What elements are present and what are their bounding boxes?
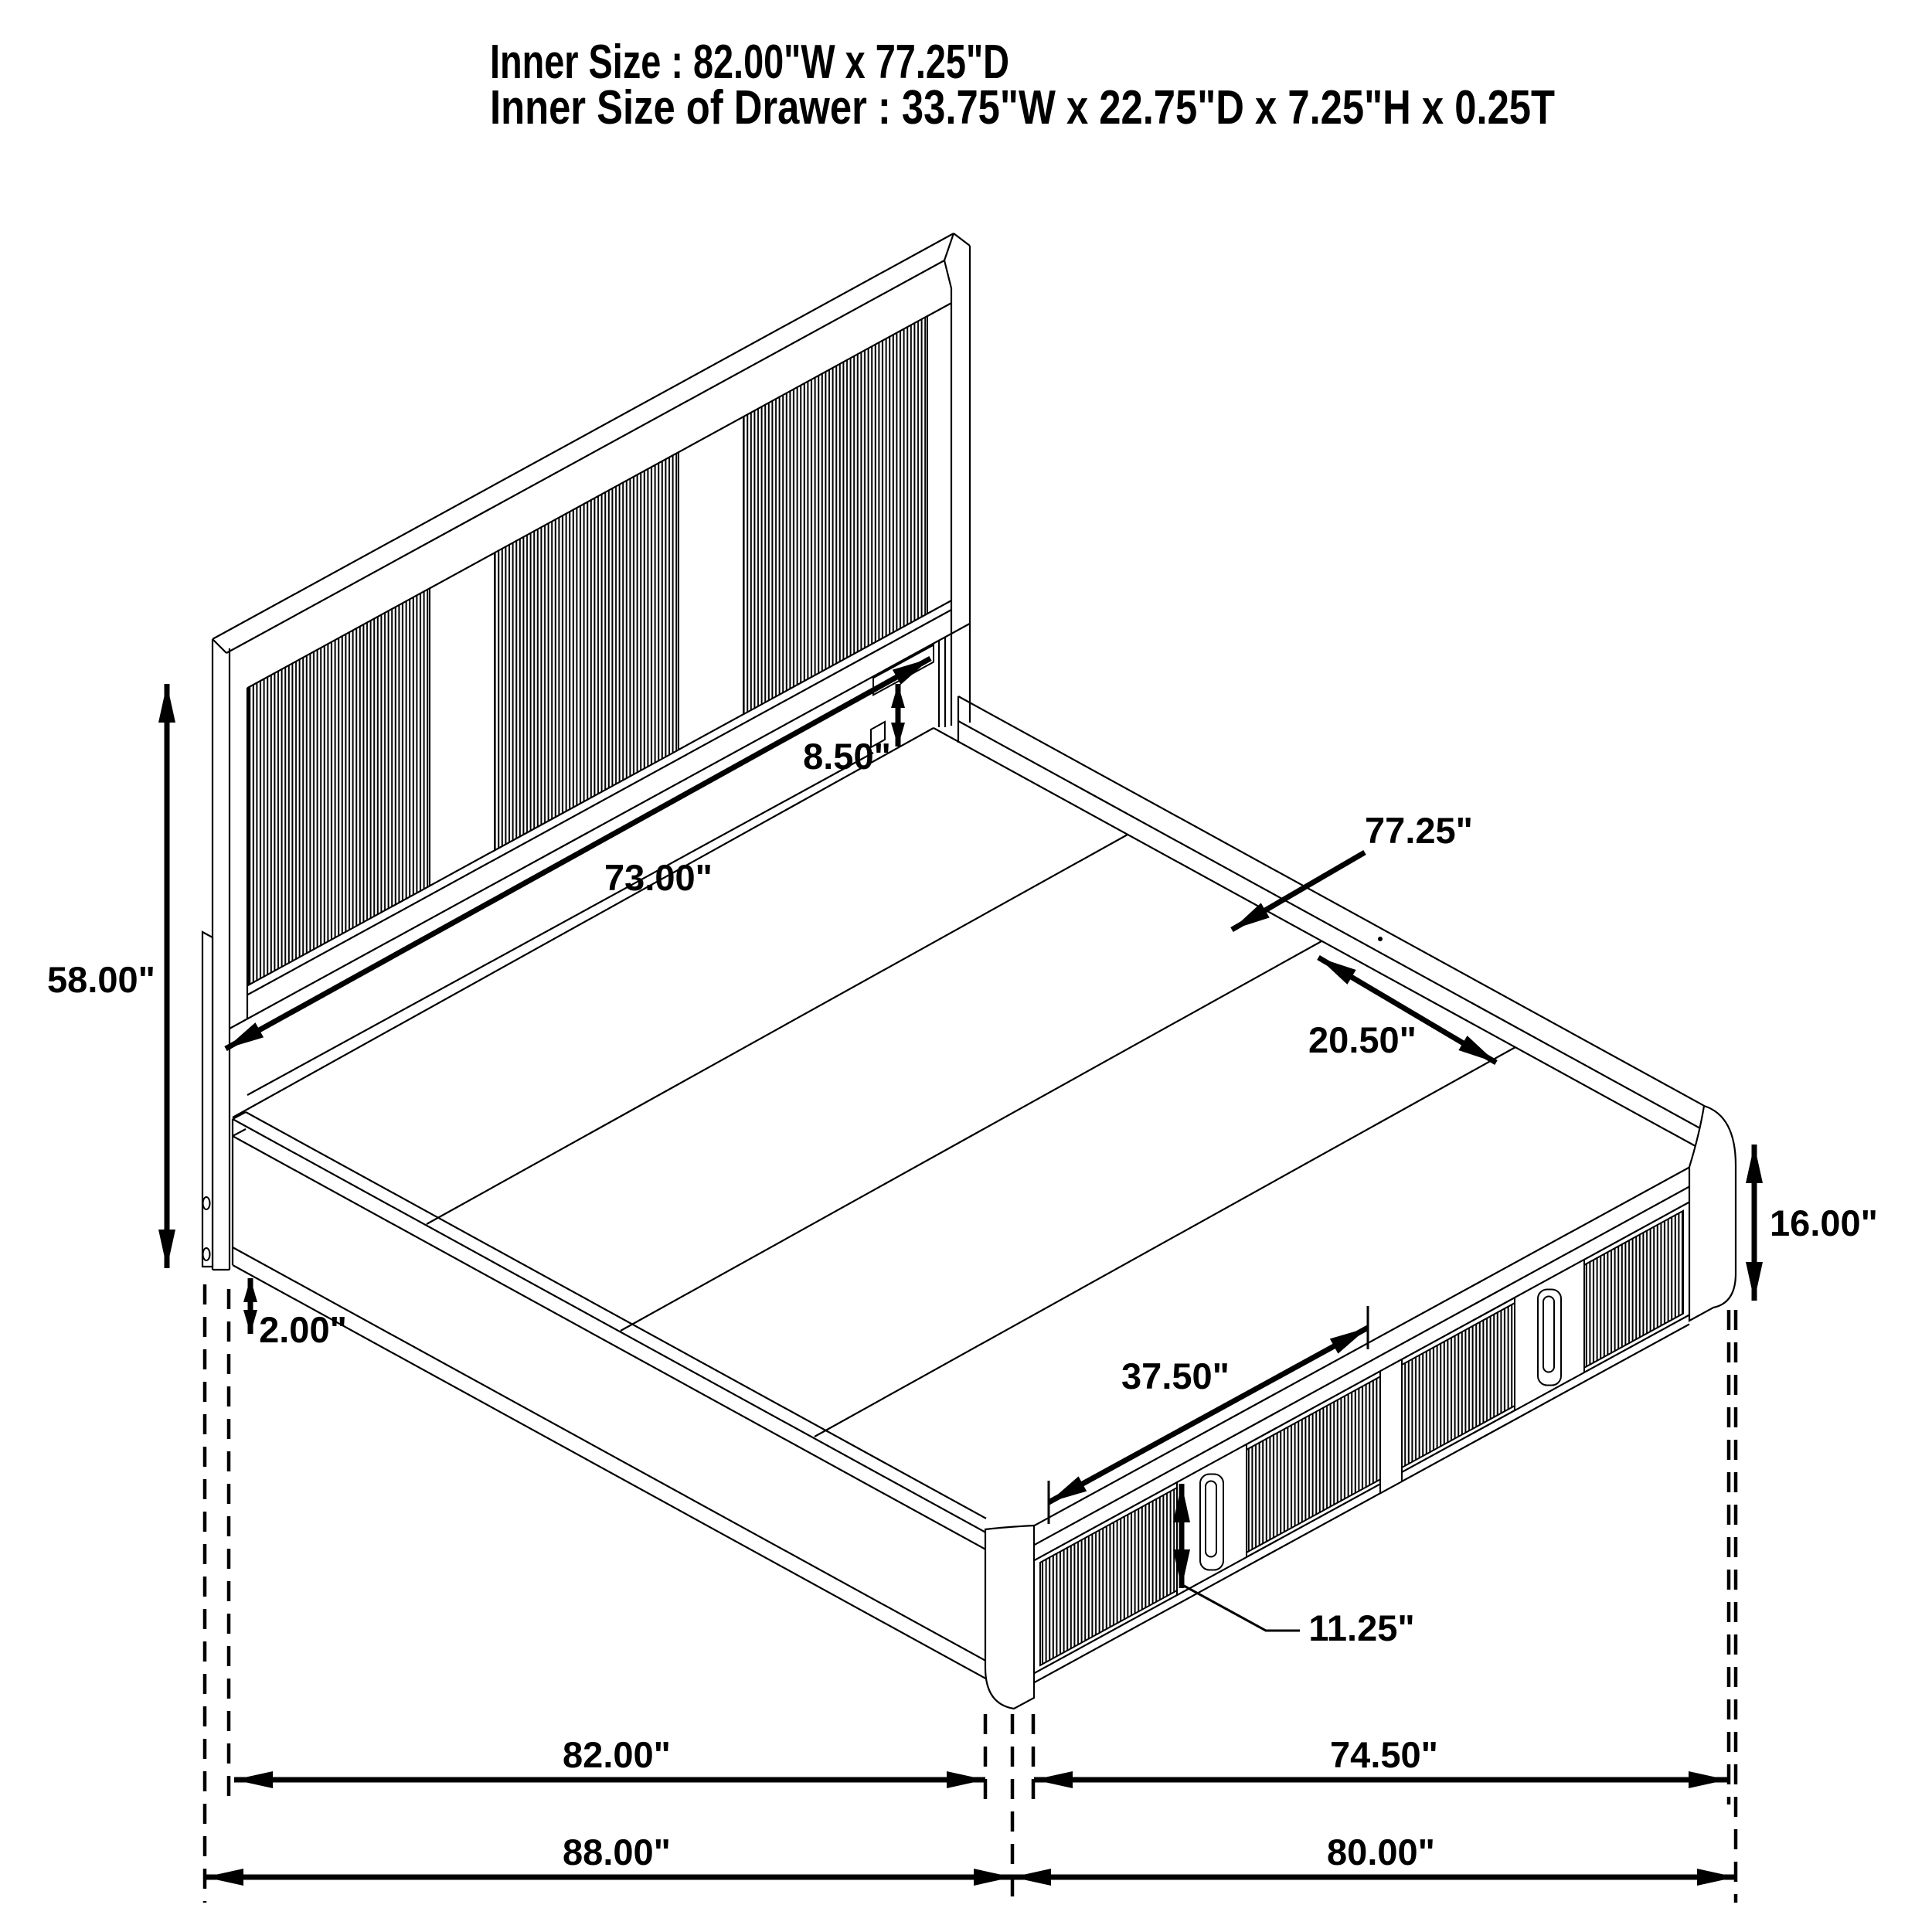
svg-text:2.00": 2.00"	[259, 1309, 347, 1350]
svg-text:58.00": 58.00"	[47, 959, 155, 1000]
svg-text:77.25": 77.25"	[1365, 810, 1473, 851]
svg-text:82.00": 82.00"	[563, 1734, 671, 1775]
svg-text:88.00": 88.00"	[563, 1832, 671, 1872]
svg-text:20.50": 20.50"	[1308, 1019, 1417, 1060]
svg-text:37.50": 37.50"	[1121, 1355, 1230, 1396]
svg-text:11.25": 11.25"	[1308, 1607, 1414, 1648]
svg-text:16.00": 16.00"	[1770, 1202, 1878, 1243]
svg-text:80.00": 80.00"	[1327, 1832, 1435, 1872]
svg-text:8.50": 8.50"	[803, 736, 891, 777]
svg-text:73.00": 73.00"	[604, 857, 713, 898]
svg-text:74.50": 74.50"	[1330, 1734, 1438, 1775]
svg-text:Inner Size of Drawer : 33.75"W: Inner Size of Drawer : 33.75"W x 22.75"D…	[490, 81, 1555, 134]
